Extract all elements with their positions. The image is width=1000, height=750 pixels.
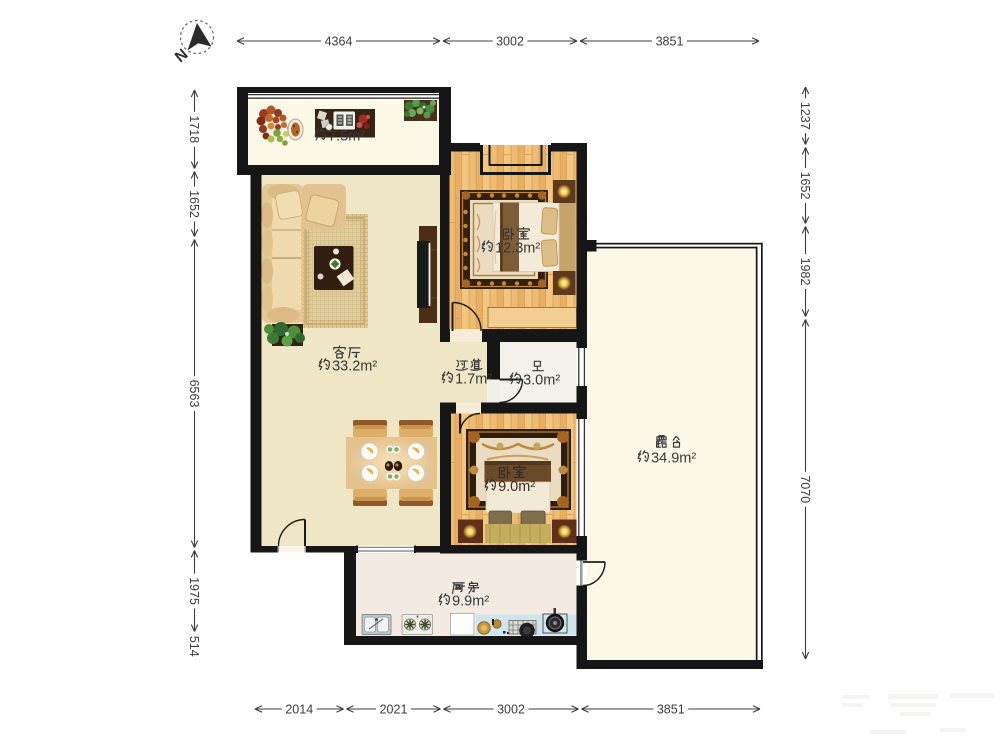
svg-text:3002: 3002 xyxy=(496,34,524,48)
svg-text:6563: 6563 xyxy=(187,380,201,408)
svg-text:34.9m²: 34.9m² xyxy=(651,451,696,467)
svg-text:1982: 1982 xyxy=(798,258,812,286)
svg-text:1652: 1652 xyxy=(798,172,812,200)
svg-text:1.7m²: 1.7m² xyxy=(455,372,492,388)
svg-text:3851: 3851 xyxy=(657,702,685,716)
svg-text:1718: 1718 xyxy=(187,115,201,143)
svg-text:2014: 2014 xyxy=(285,702,313,716)
svg-text:12.3m²: 12.3m² xyxy=(495,241,540,257)
svg-text:3002: 3002 xyxy=(497,702,525,716)
svg-text:1652: 1652 xyxy=(187,190,201,218)
svg-text:1237: 1237 xyxy=(798,102,812,130)
svg-text:1975: 1975 xyxy=(187,577,201,605)
svg-text:4364: 4364 xyxy=(325,34,353,48)
svg-text:3.0m²: 3.0m² xyxy=(523,373,560,389)
svg-text:9.9m²: 9.9m² xyxy=(452,594,489,610)
svg-text:9.0m²: 9.0m² xyxy=(498,479,535,495)
svg-text:3851: 3851 xyxy=(656,34,684,48)
svg-text:33.2m²: 33.2m² xyxy=(332,359,377,375)
svg-text:7070: 7070 xyxy=(798,475,812,503)
svg-text:7.5m²: 7.5m² xyxy=(328,129,365,145)
svg-text:514: 514 xyxy=(187,636,201,657)
svg-text:2021: 2021 xyxy=(380,702,408,716)
